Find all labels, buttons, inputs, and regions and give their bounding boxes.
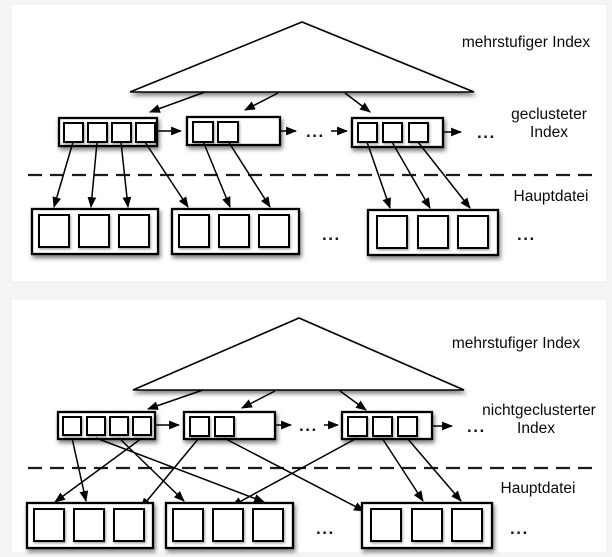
index-entry-cell	[398, 417, 417, 436]
record-cell	[219, 215, 249, 247]
index-entry-cell	[190, 417, 209, 436]
record-cell	[114, 509, 144, 541]
record-cell	[34, 509, 64, 541]
ellipsis: ...	[477, 123, 496, 142]
index-entry-cell	[358, 123, 377, 142]
record-cell	[173, 509, 203, 541]
figure-canvas: ... ... ... ... mehrstufiger Index	[0, 0, 612, 557]
ellipsis: ...	[299, 416, 318, 435]
index-entry-cell	[64, 123, 83, 142]
ellipsis: ...	[510, 519, 529, 538]
record-cell	[79, 215, 109, 247]
ellipsis: ...	[316, 519, 335, 538]
index-entry-cell	[133, 417, 151, 435]
index-structures-figure: ... ... ... ... mehrstufiger Index	[0, 0, 612, 557]
record-cell	[371, 509, 401, 541]
index-entry-cell	[88, 123, 107, 142]
index-entry-cell	[136, 123, 155, 142]
record-cell	[452, 509, 482, 541]
index-type-label-line2: Index	[517, 420, 555, 437]
record-cell	[39, 215, 69, 247]
ellipsis: ...	[306, 122, 325, 141]
record-cell	[458, 216, 488, 248]
record-cell	[213, 509, 243, 541]
index-entry-cell	[193, 122, 213, 142]
ellipsis: ...	[322, 225, 341, 244]
index-type-label-line1: geclusteter	[511, 106, 587, 123]
multilevel-index-label: mehrstufiger Index	[452, 335, 581, 352]
record-cell	[377, 216, 407, 248]
record-cell	[179, 215, 209, 247]
index-entry-cell	[87, 417, 105, 435]
ellipsis: ...	[467, 417, 486, 436]
record-cell	[412, 509, 442, 541]
index-entry-cell	[218, 122, 238, 142]
main-file-label: Hauptdatei	[501, 480, 576, 497]
record-cell	[74, 509, 104, 541]
record-cell	[253, 509, 283, 541]
main-file-label: Hauptdatei	[514, 188, 589, 205]
index-entry-cell	[110, 417, 128, 435]
index-type-label-line1: nichtgeclusterter	[482, 402, 596, 419]
record-cell	[418, 216, 448, 248]
index-entry-cell	[63, 417, 81, 435]
record-cell	[259, 215, 289, 247]
index-entry-cell	[112, 123, 131, 142]
record-cell	[119, 215, 149, 247]
index-entry-cell	[409, 123, 428, 142]
index-entry-cell	[373, 417, 392, 436]
index-entry-cell	[348, 417, 367, 436]
multilevel-index-label: mehrstufiger Index	[462, 34, 591, 51]
index-entry-cell	[215, 417, 234, 436]
index-type-label-line2: Index	[530, 124, 568, 141]
ellipsis: ...	[517, 225, 536, 244]
index-entry-cell	[383, 123, 402, 142]
